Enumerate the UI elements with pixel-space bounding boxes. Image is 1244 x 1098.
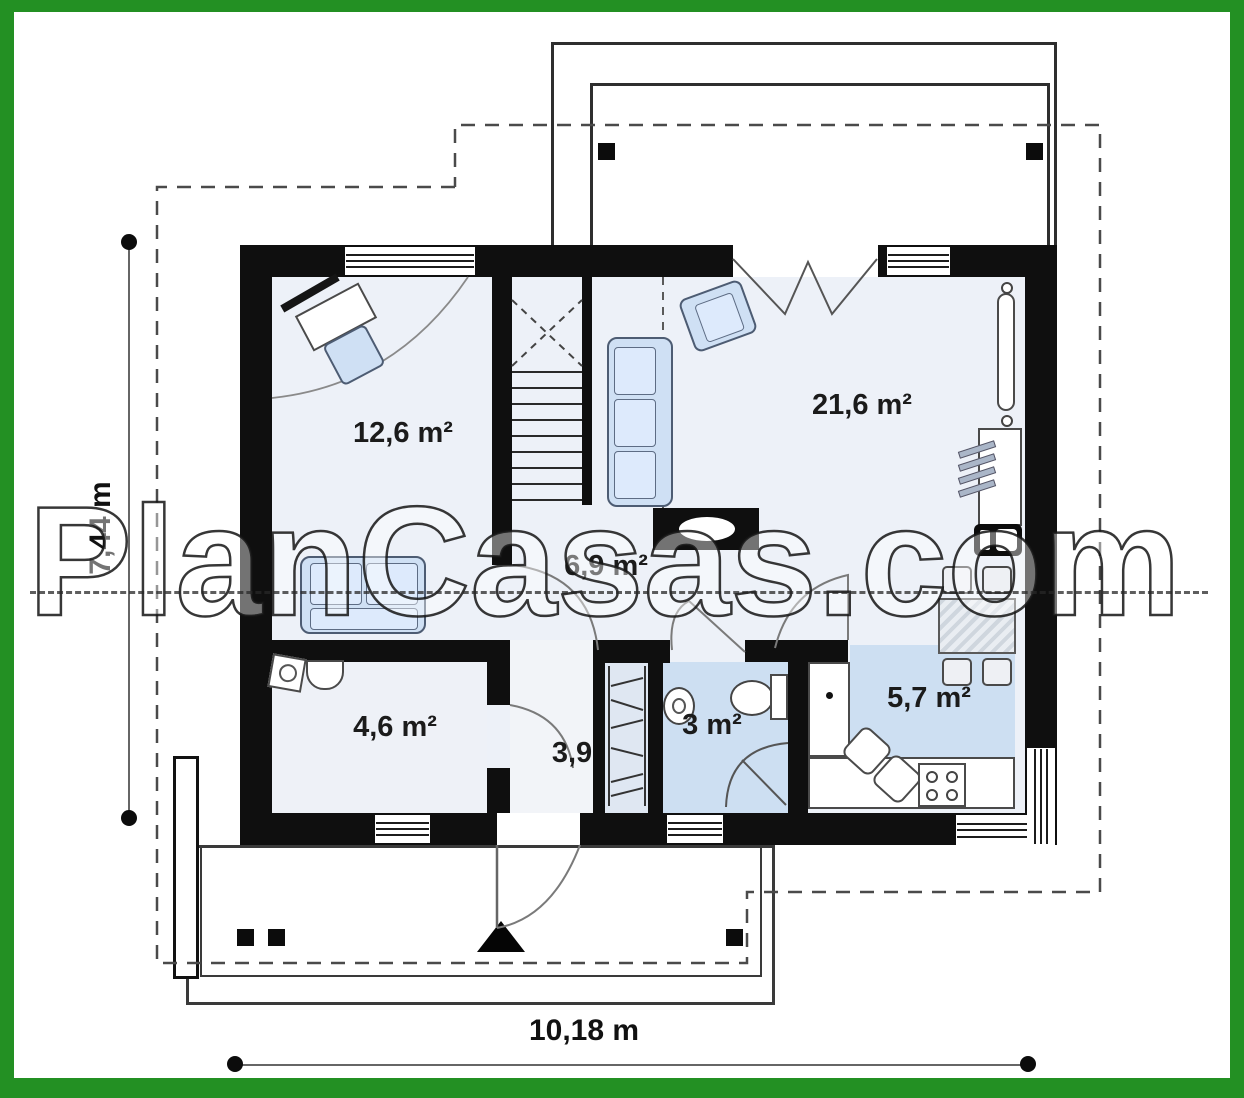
wall-wardrobe-left [593, 648, 605, 813]
radiator-valve-bottom [1001, 415, 1013, 427]
width-dimension-label: 10,18 m [484, 1014, 684, 1054]
window-bathroom-bottom [375, 815, 430, 843]
wall-wc-top [745, 640, 848, 662]
washbasin-bathroom [267, 653, 306, 692]
counter-dot [826, 692, 833, 699]
dimension-dot [121, 810, 137, 826]
entrance-arrow [477, 921, 525, 952]
radiator-valve-top [1001, 282, 1013, 294]
room-label-wc: 3 m² [622, 709, 802, 742]
entry-floor [510, 640, 593, 813]
dining-chair-1 [942, 566, 972, 594]
room-label-bedroom: 12,6 m² [313, 417, 493, 450]
wall-bathroom-right-lower [487, 768, 510, 813]
window-living-top [887, 247, 950, 275]
radiator [997, 293, 1015, 411]
dimension-dot [1020, 1056, 1036, 1072]
dimension-line-height [128, 242, 130, 818]
room-label-living: 21,6 m² [772, 389, 952, 422]
watermark-strike-line [30, 591, 1208, 594]
dining-chair-2 [982, 566, 1012, 594]
bedroom-sofa [300, 556, 426, 634]
room-label-kitchen: 5,7 m² [839, 682, 1019, 715]
dining-table [938, 598, 1016, 654]
dimension-dot [121, 234, 137, 250]
room-label-hall: 6,9 m² [516, 550, 696, 583]
window-entry-bottom [667, 815, 723, 843]
wall-stairs-right [582, 277, 592, 505]
frame-border-right [1230, 0, 1244, 1098]
corner-window-bottom [956, 815, 1036, 845]
corner-window-right [1027, 748, 1055, 845]
kitchen-sink-unit [974, 524, 1022, 556]
porch-post-2 [268, 929, 285, 946]
french-door-opening [733, 245, 878, 277]
terrace-inner-outline [590, 83, 1050, 245]
frame-border-top [0, 0, 1244, 12]
porch-pillar [173, 756, 199, 979]
dimension-dot [227, 1056, 243, 1072]
dimension-line-width [235, 1064, 1028, 1066]
terrace-post-right [1026, 143, 1043, 160]
fireplace-lens [679, 517, 735, 541]
frame-border-left [0, 0, 14, 1098]
frame-border-bottom [0, 1078, 1244, 1098]
wall-bathroom-right-upper [487, 640, 510, 705]
porch-post-1 [237, 929, 254, 946]
living-sofa [607, 337, 673, 507]
floor-plan-image: 7,44 m 10,18 m 12,6 m² 21,6 m² 6,9 m² 4,… [0, 0, 1244, 1098]
window-bedroom-top [345, 247, 475, 275]
room-label-bathroom: 4,6 m² [305, 711, 485, 744]
wall-bedroom-right [492, 277, 512, 565]
porch-inner-outline [200, 845, 762, 977]
entrance-door-opening [497, 813, 580, 845]
stove [918, 763, 966, 807]
terrace-post-left [598, 143, 615, 160]
porch-post-3 [726, 929, 743, 946]
